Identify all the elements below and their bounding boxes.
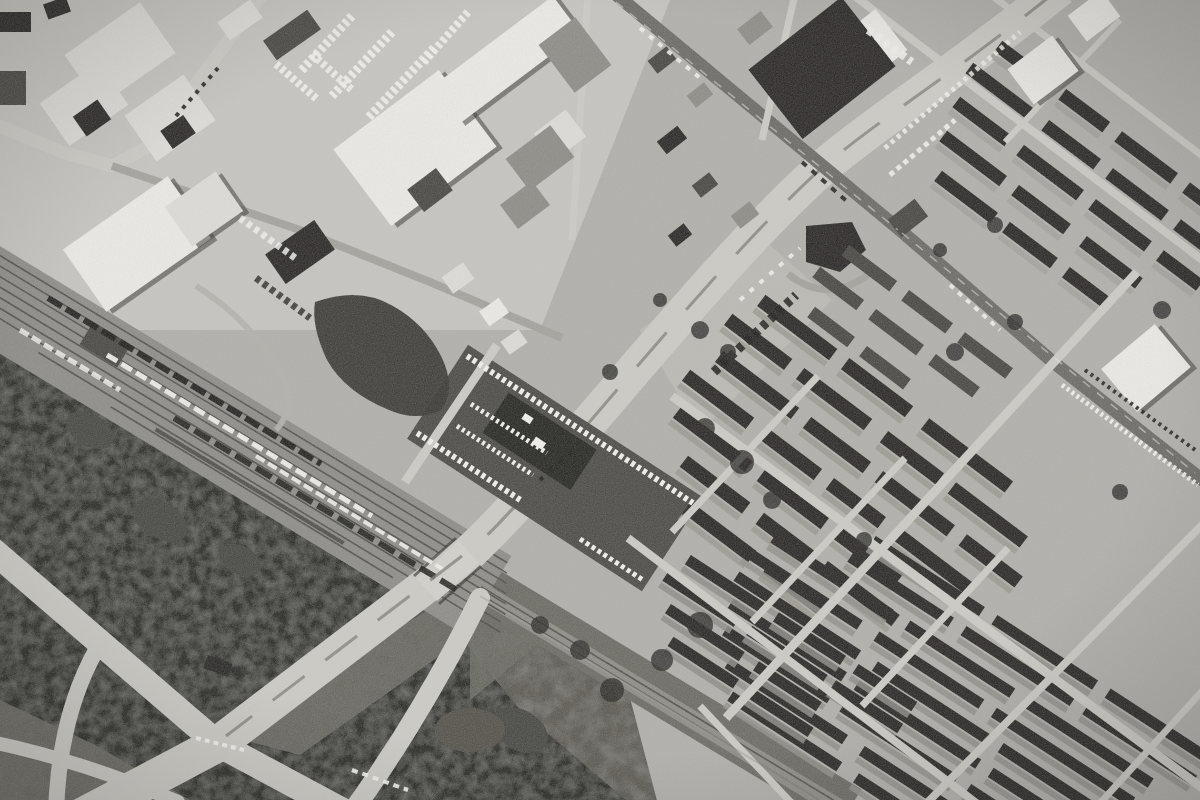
aerial-photo: Black-and-white aerial photograph of an … — [0, 0, 1200, 800]
vignette-overlay — [0, 0, 1200, 800]
aerial-photo-stage: Black-and-white aerial photograph of an … — [0, 0, 1200, 800]
